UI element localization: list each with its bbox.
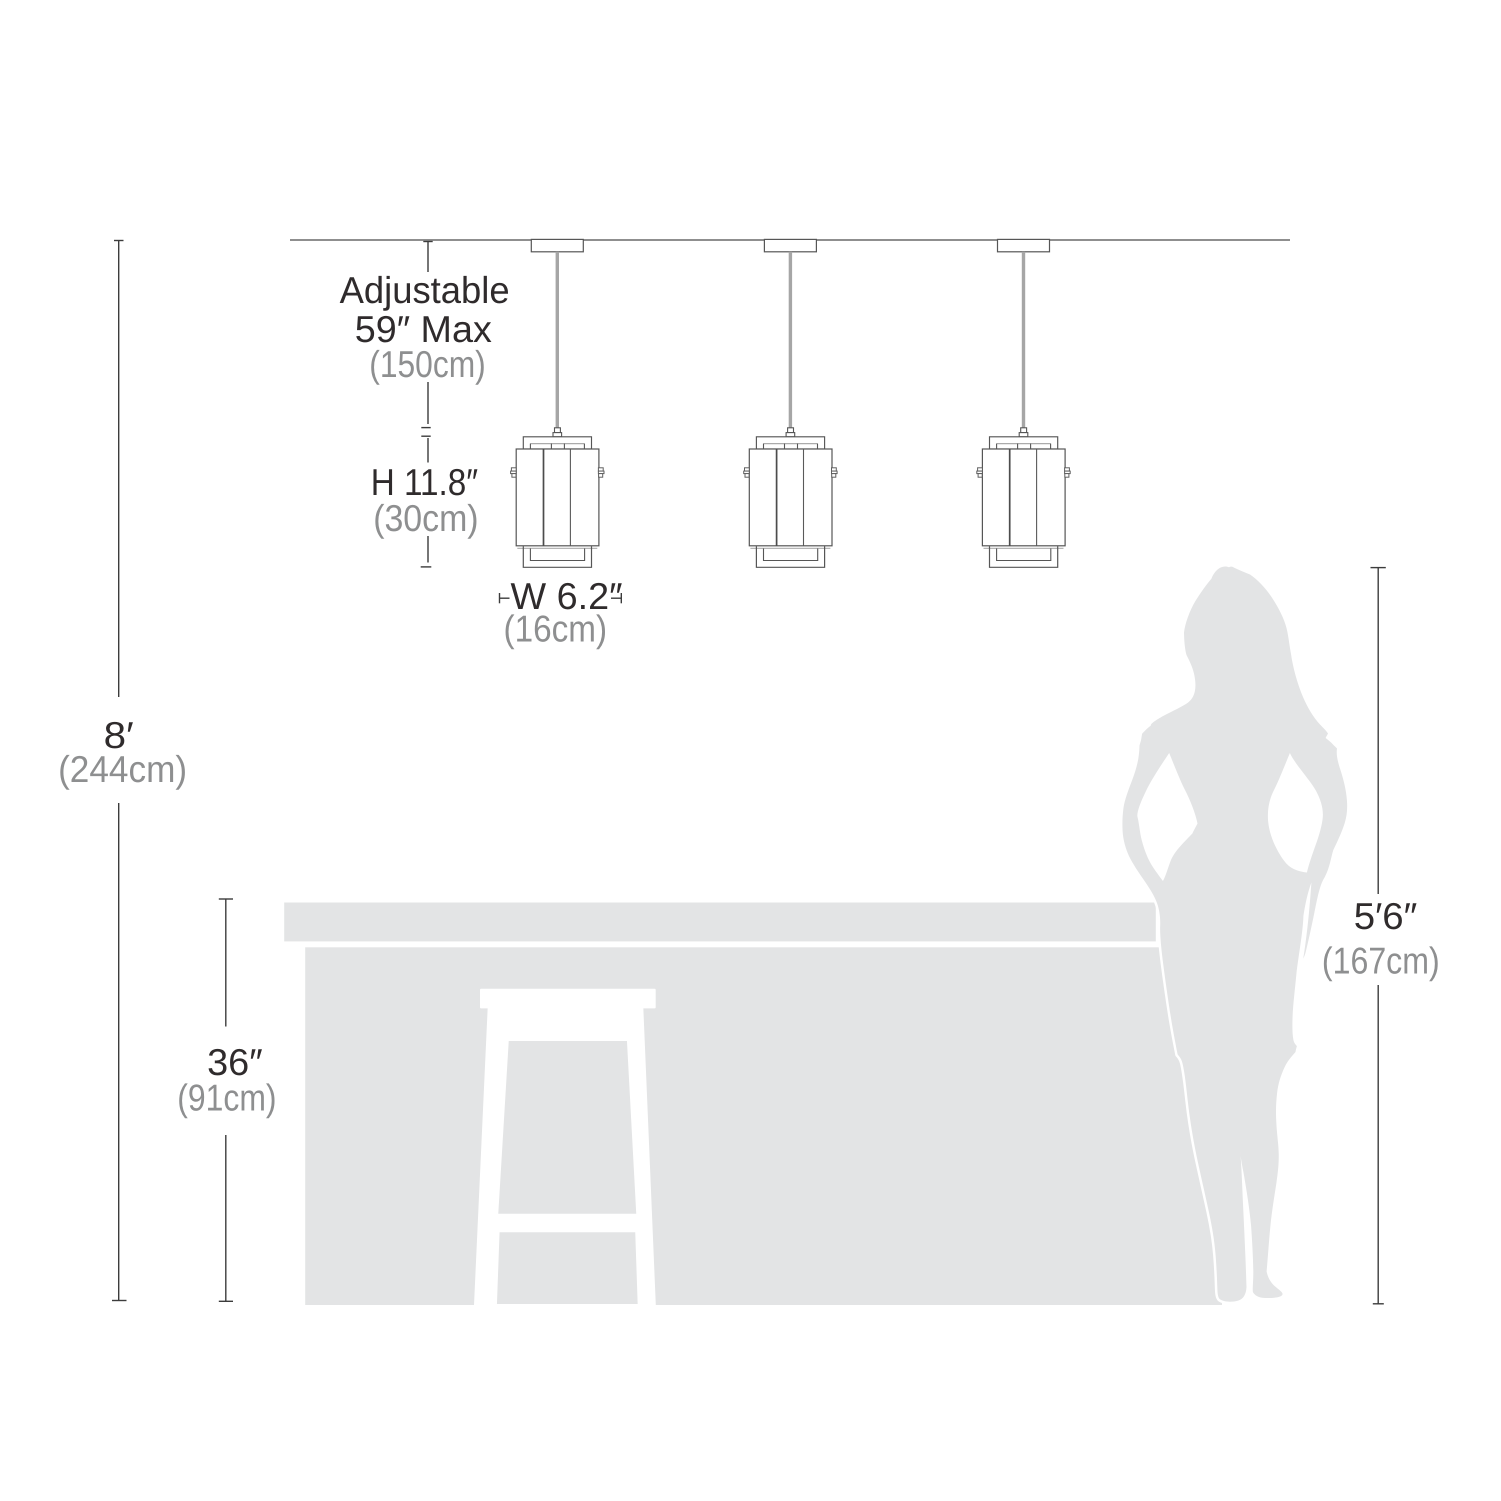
svg-text:(91cm): (91cm) <box>177 1077 276 1119</box>
svg-text:(244cm): (244cm) <box>58 748 187 790</box>
svg-text:(167cm): (167cm) <box>1322 940 1440 982</box>
svg-text:(30cm): (30cm) <box>373 497 478 539</box>
svg-text:(150cm): (150cm) <box>369 343 486 385</box>
svg-text:5′6″: 5′6″ <box>1354 895 1418 937</box>
svg-text:(16cm): (16cm) <box>504 608 608 650</box>
svg-text:Adjustable: Adjustable <box>340 269 510 311</box>
